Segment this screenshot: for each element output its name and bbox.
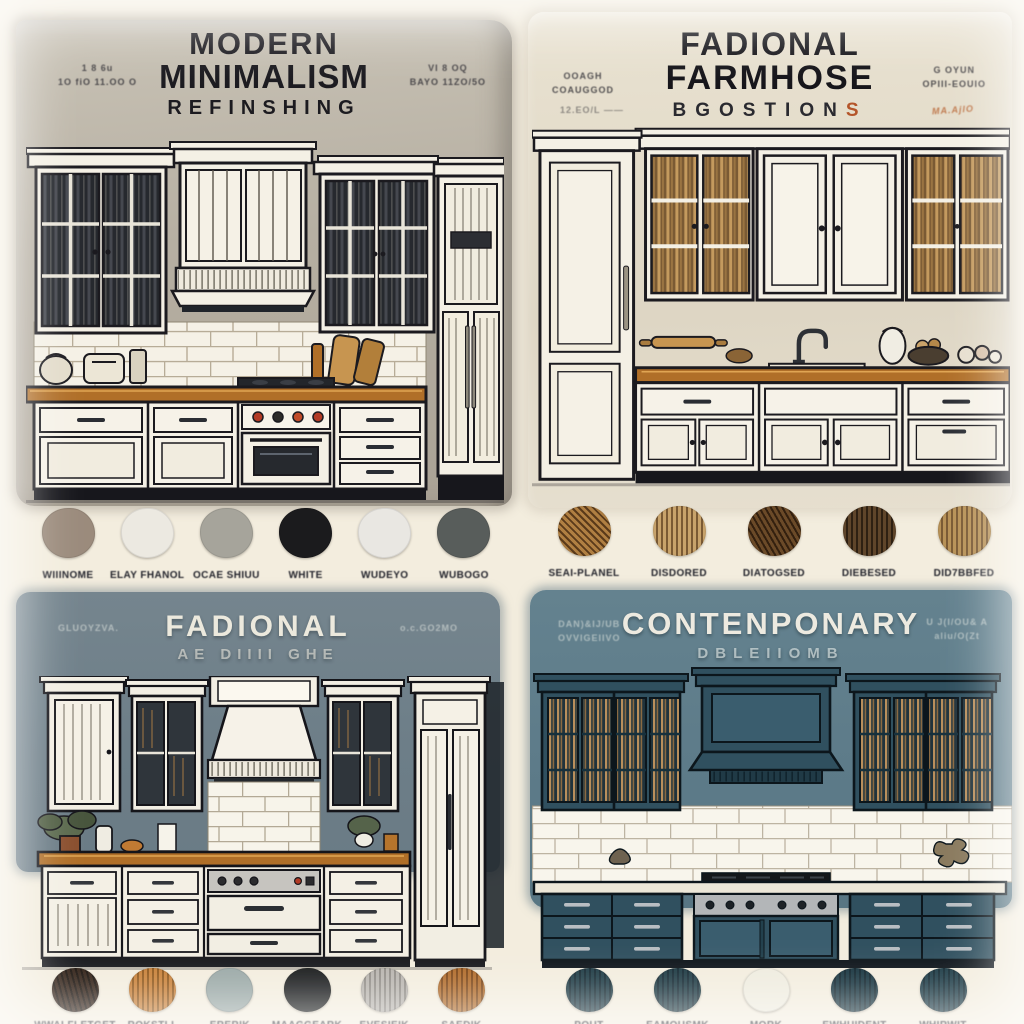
upper-glass-cabinet-left — [646, 149, 754, 300]
tall-cabinet — [408, 676, 490, 960]
farmhouse-note-right: G OYUN OPIII-EOUIO — [922, 64, 986, 91]
upper-glass-cabinet-right — [906, 149, 1008, 300]
fadional-title-block: FADIONAL AE DIIII GHE — [16, 610, 500, 663]
color-swatch-circle — [654, 968, 701, 1012]
swatch: POUT — [550, 968, 628, 1024]
upper-glass-left — [126, 680, 208, 811]
swatch-label: SAEDIK — [441, 1020, 481, 1024]
oven-range — [242, 405, 330, 484]
swatch: ELAY FHANOL — [109, 508, 185, 581]
farmhouse-note-left: OOAGH COAUGGOD — [552, 70, 614, 97]
swatch-label: ELAY FHANOL — [110, 570, 184, 581]
color-swatch-circle — [831, 968, 878, 1012]
swatch: ROKSTLL — [114, 968, 191, 1024]
swatch-label: ERERIK — [210, 1020, 250, 1024]
fadional-note-left: GLUOYZVA. — [58, 622, 119, 636]
swatch-label: ROKSTLL — [128, 1020, 178, 1024]
kitchen-illustration-fadional — [12, 676, 504, 971]
contemporary-note-right: U J(I/OU& A aliu/O(Zt — [926, 616, 988, 643]
fadional-subtitle: AE DIIII GHE — [16, 646, 500, 663]
swatch: WUBOGO — [426, 508, 502, 581]
base-cabinets-right — [850, 894, 994, 960]
swatch: WHITE — [268, 508, 344, 581]
panel-modern-minimalism: MODERN MINIMALISM REFINSHING 1 8 6u 1O f… — [16, 20, 512, 506]
swatch-label: EAMOUSMK — [646, 1020, 709, 1024]
kitchen-illustration-farmhouse — [532, 116, 1010, 498]
swatch-label: WHITE — [288, 570, 322, 581]
upper-glass-right — [322, 680, 404, 811]
style-comparison-poster: MODERN MINIMALISM REFINSHING 1 8 6u 1O f… — [0, 0, 1024, 1024]
base-cabinets-left — [542, 894, 682, 960]
color-swatch-circle — [129, 968, 176, 1012]
swatch-label: EVESIEIK — [360, 1020, 409, 1024]
panel-fadional-farmhose: FADIONAL FARMHOSE BGOSTIONS OOAGH COAUGG… — [528, 12, 1012, 508]
swatch: MAAGGEARK — [268, 968, 345, 1024]
color-swatch-circle — [361, 968, 408, 1012]
color-swatch-circle — [558, 506, 611, 556]
swatch-label: MORK — [750, 1020, 782, 1024]
upper-cabinet-plank — [40, 676, 128, 811]
palette-row-modern: WIIINOMEELAY FHANOLOCAE SHIUUWHITEWUDEYO… — [30, 508, 502, 581]
palette-row-fadional: WWALFLETGETROKSTLLERERIKMAAGGEARKEVESIEI… — [36, 968, 500, 1024]
hood — [690, 668, 842, 783]
swatch: MORK — [727, 968, 805, 1024]
palette-row-farmhouse: SEAI-PLANELDISDOREDDIATOGSEDDIEBESEDDID7… — [546, 506, 1002, 579]
swatch: EVESIEIK — [346, 968, 423, 1024]
countertop — [38, 852, 410, 866]
swatch-label: DID7BBFED — [934, 568, 995, 579]
kitchen-illustration-contemporary — [532, 658, 1012, 968]
tall-cabinet-fridge — [434, 158, 504, 476]
swatch: ERERIK — [191, 968, 268, 1024]
upper-cabinets-right — [846, 674, 1000, 810]
swatch-label: WHIRWIT — [919, 1020, 967, 1024]
swatch-label: EWHUIDENT — [822, 1020, 886, 1024]
base-cabinets — [34, 402, 426, 489]
color-swatch-circle — [279, 508, 332, 558]
kitchen-illustration-modern — [26, 136, 504, 504]
backsplash-tile — [208, 782, 320, 852]
swatch-label: WUBOGO — [439, 570, 489, 581]
swatch: OCAE SHIUU — [188, 508, 264, 581]
upper-cabinets-left — [534, 674, 688, 810]
color-swatch-circle — [748, 506, 801, 556]
countertop — [534, 882, 1006, 894]
swatch: WIIINOME — [30, 508, 106, 581]
swatch: WUDEYO — [347, 508, 423, 581]
swatch-label: POUT — [574, 1020, 603, 1024]
color-swatch-circle — [843, 506, 896, 556]
swatch: DIATOGSED — [736, 506, 812, 579]
swatch: SEAI-PLANEL — [546, 506, 622, 579]
countertop — [636, 368, 1010, 383]
range-hood — [170, 142, 316, 312]
stainless-range — [208, 870, 320, 954]
toe-kick — [542, 960, 994, 968]
color-swatch-circle — [42, 508, 95, 558]
pantry-cabinet — [532, 131, 642, 480]
modern-note-right: VI 8 OQ BAYO 11ZO/5O — [410, 62, 486, 89]
upper-cabinet-left — [26, 148, 176, 333]
swatch-label: DISDORED — [651, 568, 707, 579]
swatch: DIEBESED — [831, 506, 907, 579]
color-swatch-circle — [121, 508, 174, 558]
color-swatch-circle — [438, 968, 485, 1012]
fadional-note-right: o.c.GO2MO — [400, 622, 458, 636]
color-swatch-circle — [200, 508, 253, 558]
swatch: WWALFLETGET — [36, 968, 114, 1024]
color-swatch-circle — [653, 506, 706, 556]
color-swatch-circle — [284, 968, 331, 1012]
color-swatch-circle — [437, 508, 490, 558]
swatch: DISDORED — [641, 506, 717, 579]
upper-solid-cabinet-center — [757, 149, 902, 300]
color-swatch-circle — [938, 506, 991, 556]
modern-note-left: 1 8 6u 1O fiO 11.OO O — [58, 62, 137, 89]
countertop — [26, 387, 426, 402]
contemporary-note-left: DAN)&IJ/UB OVVIGEIIVO — [558, 618, 621, 645]
palette-row-contemporary: POUTEAMOUSMKMORKEWHUIDENTWHIRWIT — [550, 968, 982, 1024]
swatch: EAMOUSMK — [639, 968, 717, 1024]
cooktop — [702, 873, 830, 882]
swatch: EWHUIDENT — [816, 968, 894, 1024]
curved-hood — [208, 676, 320, 782]
swatch: SAEDIK — [423, 968, 500, 1024]
swatch-label: DIEBESED — [842, 568, 896, 579]
swatch-label: WWALFLETGET — [34, 1020, 116, 1024]
range — [694, 894, 838, 960]
swatch: WHIRWIT — [904, 968, 982, 1024]
upper-cabinet-right — [314, 156, 440, 332]
color-swatch-circle — [52, 968, 99, 1012]
crown-molding — [636, 129, 1010, 149]
color-swatch-circle — [743, 968, 790, 1012]
swatch-label: SEAI-PLANEL — [548, 568, 619, 579]
swatch-label: OCAE SHIUU — [193, 570, 260, 581]
swatch-label: WUDEYO — [361, 570, 408, 581]
counter-props — [640, 328, 1001, 370]
swatch-label: DIATOGSED — [743, 568, 805, 579]
color-swatch-circle — [566, 968, 613, 1012]
farmhouse-title-line1: FADIONAL — [528, 28, 1012, 61]
color-swatch-circle — [358, 508, 411, 558]
color-swatch-circle — [920, 968, 967, 1012]
base-cabinets — [636, 383, 1010, 473]
swatch-label: WIIINOME — [43, 570, 94, 581]
swatch-label: MAAGGEARK — [272, 1020, 342, 1024]
swatch: DID7BBFED — [926, 506, 1002, 579]
modern-title-line1: MODERN — [16, 28, 512, 60]
modern-subtitle: REFINSHING — [16, 97, 512, 120]
color-swatch-circle — [206, 968, 253, 1012]
